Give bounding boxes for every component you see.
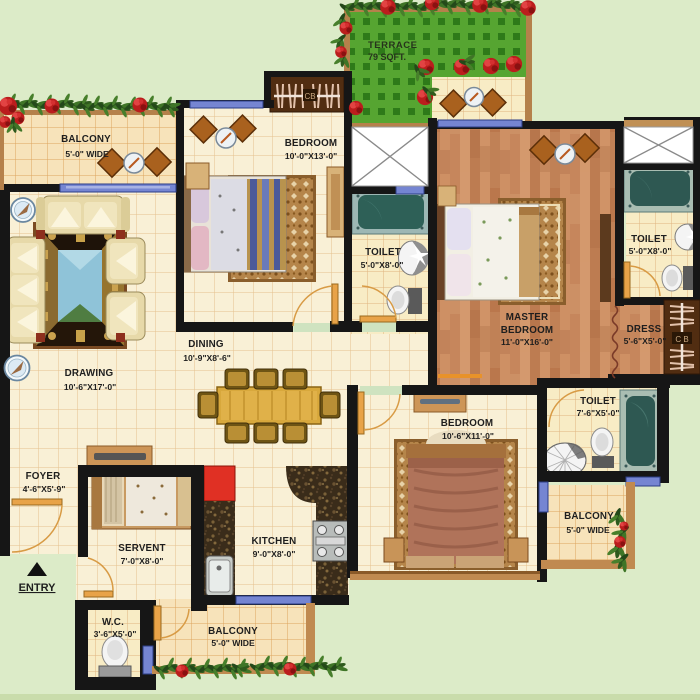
svg-text:TOILET: TOILET <box>631 234 667 245</box>
svg-text:5'-0"X8'-0": 5'-0"X8'-0" <box>361 260 404 270</box>
svg-text:BALCONY: BALCONY <box>564 511 614 522</box>
svg-text:W.C.: W.C. <box>102 617 124 628</box>
svg-text:10'-6"X17'-0": 10'-6"X17'-0" <box>64 382 116 392</box>
svg-text:7'-0"X8'-0": 7'-0"X8'-0" <box>121 556 164 566</box>
svg-text:4'-6"X5'-9": 4'-6"X5'-9" <box>23 484 66 494</box>
svg-text:9'-0"X8'-0": 9'-0"X8'-0" <box>253 549 296 559</box>
svg-text:C B: C B <box>675 335 688 344</box>
svg-text:3'-6"X5'-0": 3'-6"X5'-0" <box>94 629 137 639</box>
svg-text:7'-6"X5'-0": 7'-6"X5'-0" <box>577 408 620 418</box>
svg-text:BEDROOM: BEDROOM <box>285 138 338 149</box>
svg-text:5'-0" WIDE: 5'-0" WIDE <box>566 525 610 535</box>
svg-text:DINING: DINING <box>188 339 224 350</box>
svg-text:BALCONY: BALCONY <box>208 626 258 637</box>
svg-text:FOYER: FOYER <box>26 471 61 482</box>
svg-text:TERRACE: TERRACE <box>368 40 417 51</box>
svg-text:79 SQFT.: 79 SQFT. <box>368 52 406 62</box>
svg-text:10'-6"X11'-0": 10'-6"X11'-0" <box>442 431 494 441</box>
svg-text:DRESS: DRESS <box>627 324 662 335</box>
svg-text:DRAWING: DRAWING <box>65 368 114 379</box>
svg-text:5'-0" WIDE: 5'-0" WIDE <box>211 638 255 648</box>
svg-text:ENTRY: ENTRY <box>19 582 57 594</box>
svg-text:5'-0"X8'-0": 5'-0"X8'-0" <box>629 246 672 256</box>
svg-text:SERVENT: SERVENT <box>118 543 166 554</box>
svg-text:5'-6"X5'-0": 5'-6"X5'-0" <box>624 336 667 346</box>
svg-text:KITCHEN: KITCHEN <box>252 536 297 547</box>
svg-text:10'-9"X8'-6": 10'-9"X8'-6" <box>183 353 231 363</box>
svg-text:TOILET: TOILET <box>365 247 401 258</box>
svg-text:BEDROOM: BEDROOM <box>501 325 554 336</box>
svg-text:CB: CB <box>304 92 315 101</box>
svg-text:5'-0" WIDE: 5'-0" WIDE <box>65 149 109 159</box>
svg-text:TOILET: TOILET <box>580 396 616 407</box>
svg-text:11'-0"X16'-0": 11'-0"X16'-0" <box>501 337 553 347</box>
svg-text:BEDROOM: BEDROOM <box>441 418 494 429</box>
svg-text:MASTER: MASTER <box>506 312 549 323</box>
svg-text:10'-0"X13'-0": 10'-0"X13'-0" <box>285 151 337 161</box>
svg-text:BALCONY: BALCONY <box>61 134 111 145</box>
